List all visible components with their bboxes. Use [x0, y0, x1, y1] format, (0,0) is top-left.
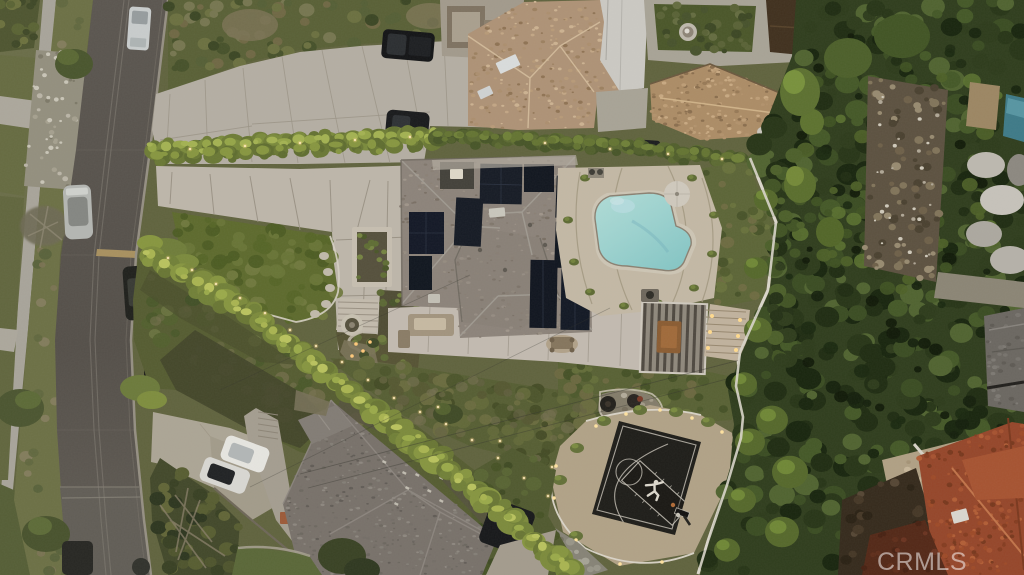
- svg-text:CRMLS: CRMLS: [877, 548, 967, 575]
